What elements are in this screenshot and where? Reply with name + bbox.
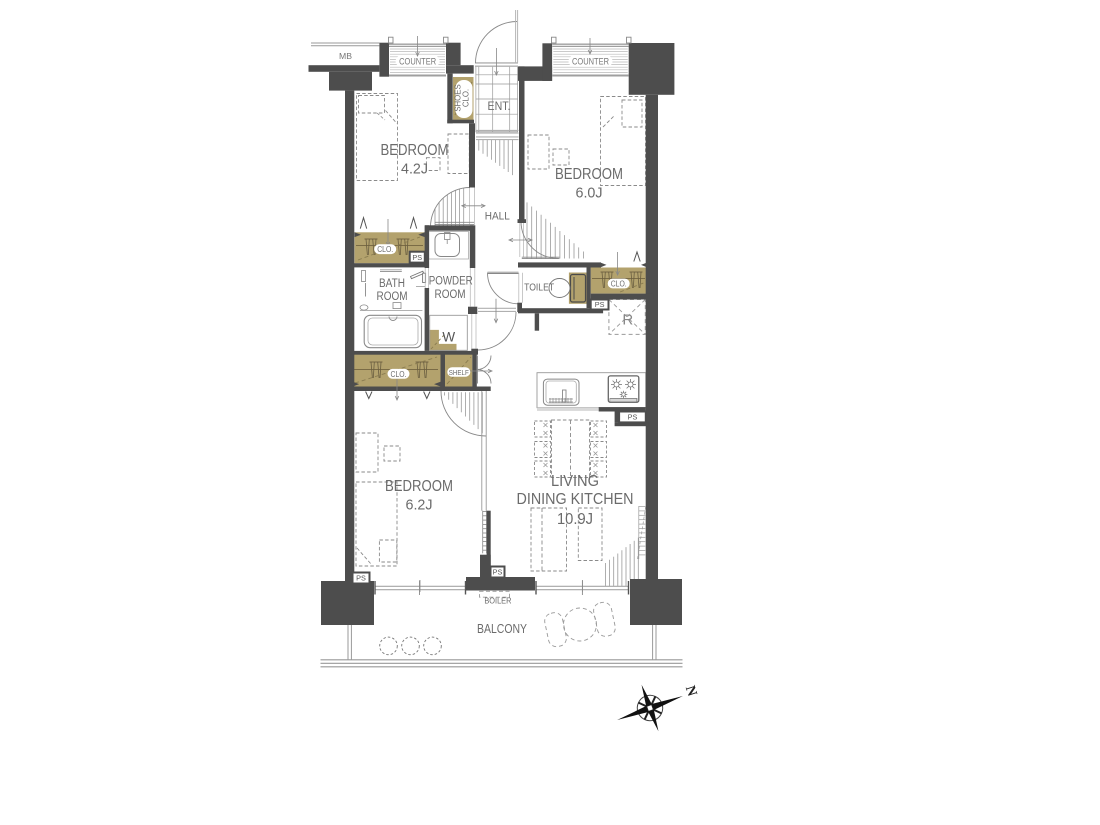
svg-text:PS: PS	[595, 300, 605, 309]
svg-text:R: R	[622, 312, 633, 329]
svg-text:PS: PS	[493, 568, 503, 577]
svg-text:CLO.: CLO.	[391, 370, 407, 379]
svg-text:DINING KITCHEN: DINING KITCHEN	[517, 491, 634, 508]
svg-text:4.2J: 4.2J	[401, 161, 428, 178]
svg-text:ROOM: ROOM	[377, 291, 408, 303]
svg-text:PS: PS	[412, 253, 422, 262]
svg-text:CLO.: CLO.	[462, 89, 471, 107]
svg-text:CLO.: CLO.	[377, 245, 393, 254]
svg-text:LIVING: LIVING	[551, 473, 599, 490]
svg-text:BEDROOM: BEDROOM	[381, 142, 449, 159]
svg-text:ROOM: ROOM	[435, 289, 466, 301]
svg-text:POWDER: POWDER	[429, 275, 473, 287]
svg-text:BEDROOM: BEDROOM	[555, 166, 623, 183]
svg-text:COUNTER: COUNTER	[572, 56, 609, 66]
svg-text:BALCONY: BALCONY	[477, 621, 527, 636]
svg-text:HALL: HALL	[485, 211, 510, 223]
svg-text:CLO.: CLO.	[611, 280, 627, 289]
svg-text:BATH: BATH	[379, 278, 405, 290]
svg-text:10.9J: 10.9J	[557, 511, 593, 528]
svg-text:PS: PS	[628, 413, 638, 422]
svg-text:6.0J: 6.0J	[576, 185, 603, 202]
svg-text:BEDROOM: BEDROOM	[385, 478, 453, 495]
svg-text:COUNTER: COUNTER	[399, 56, 436, 66]
svg-text:6.2J: 6.2J	[406, 497, 433, 514]
svg-text:BOILER: BOILER	[484, 596, 511, 606]
svg-text:SHELF: SHELF	[449, 368, 470, 377]
svg-text:TOILET: TOILET	[524, 282, 554, 293]
svg-text:W: W	[442, 330, 455, 345]
svg-text:ENT.: ENT.	[488, 101, 511, 113]
svg-text:PS: PS	[356, 574, 366, 583]
svg-text:MB: MB	[339, 51, 352, 61]
